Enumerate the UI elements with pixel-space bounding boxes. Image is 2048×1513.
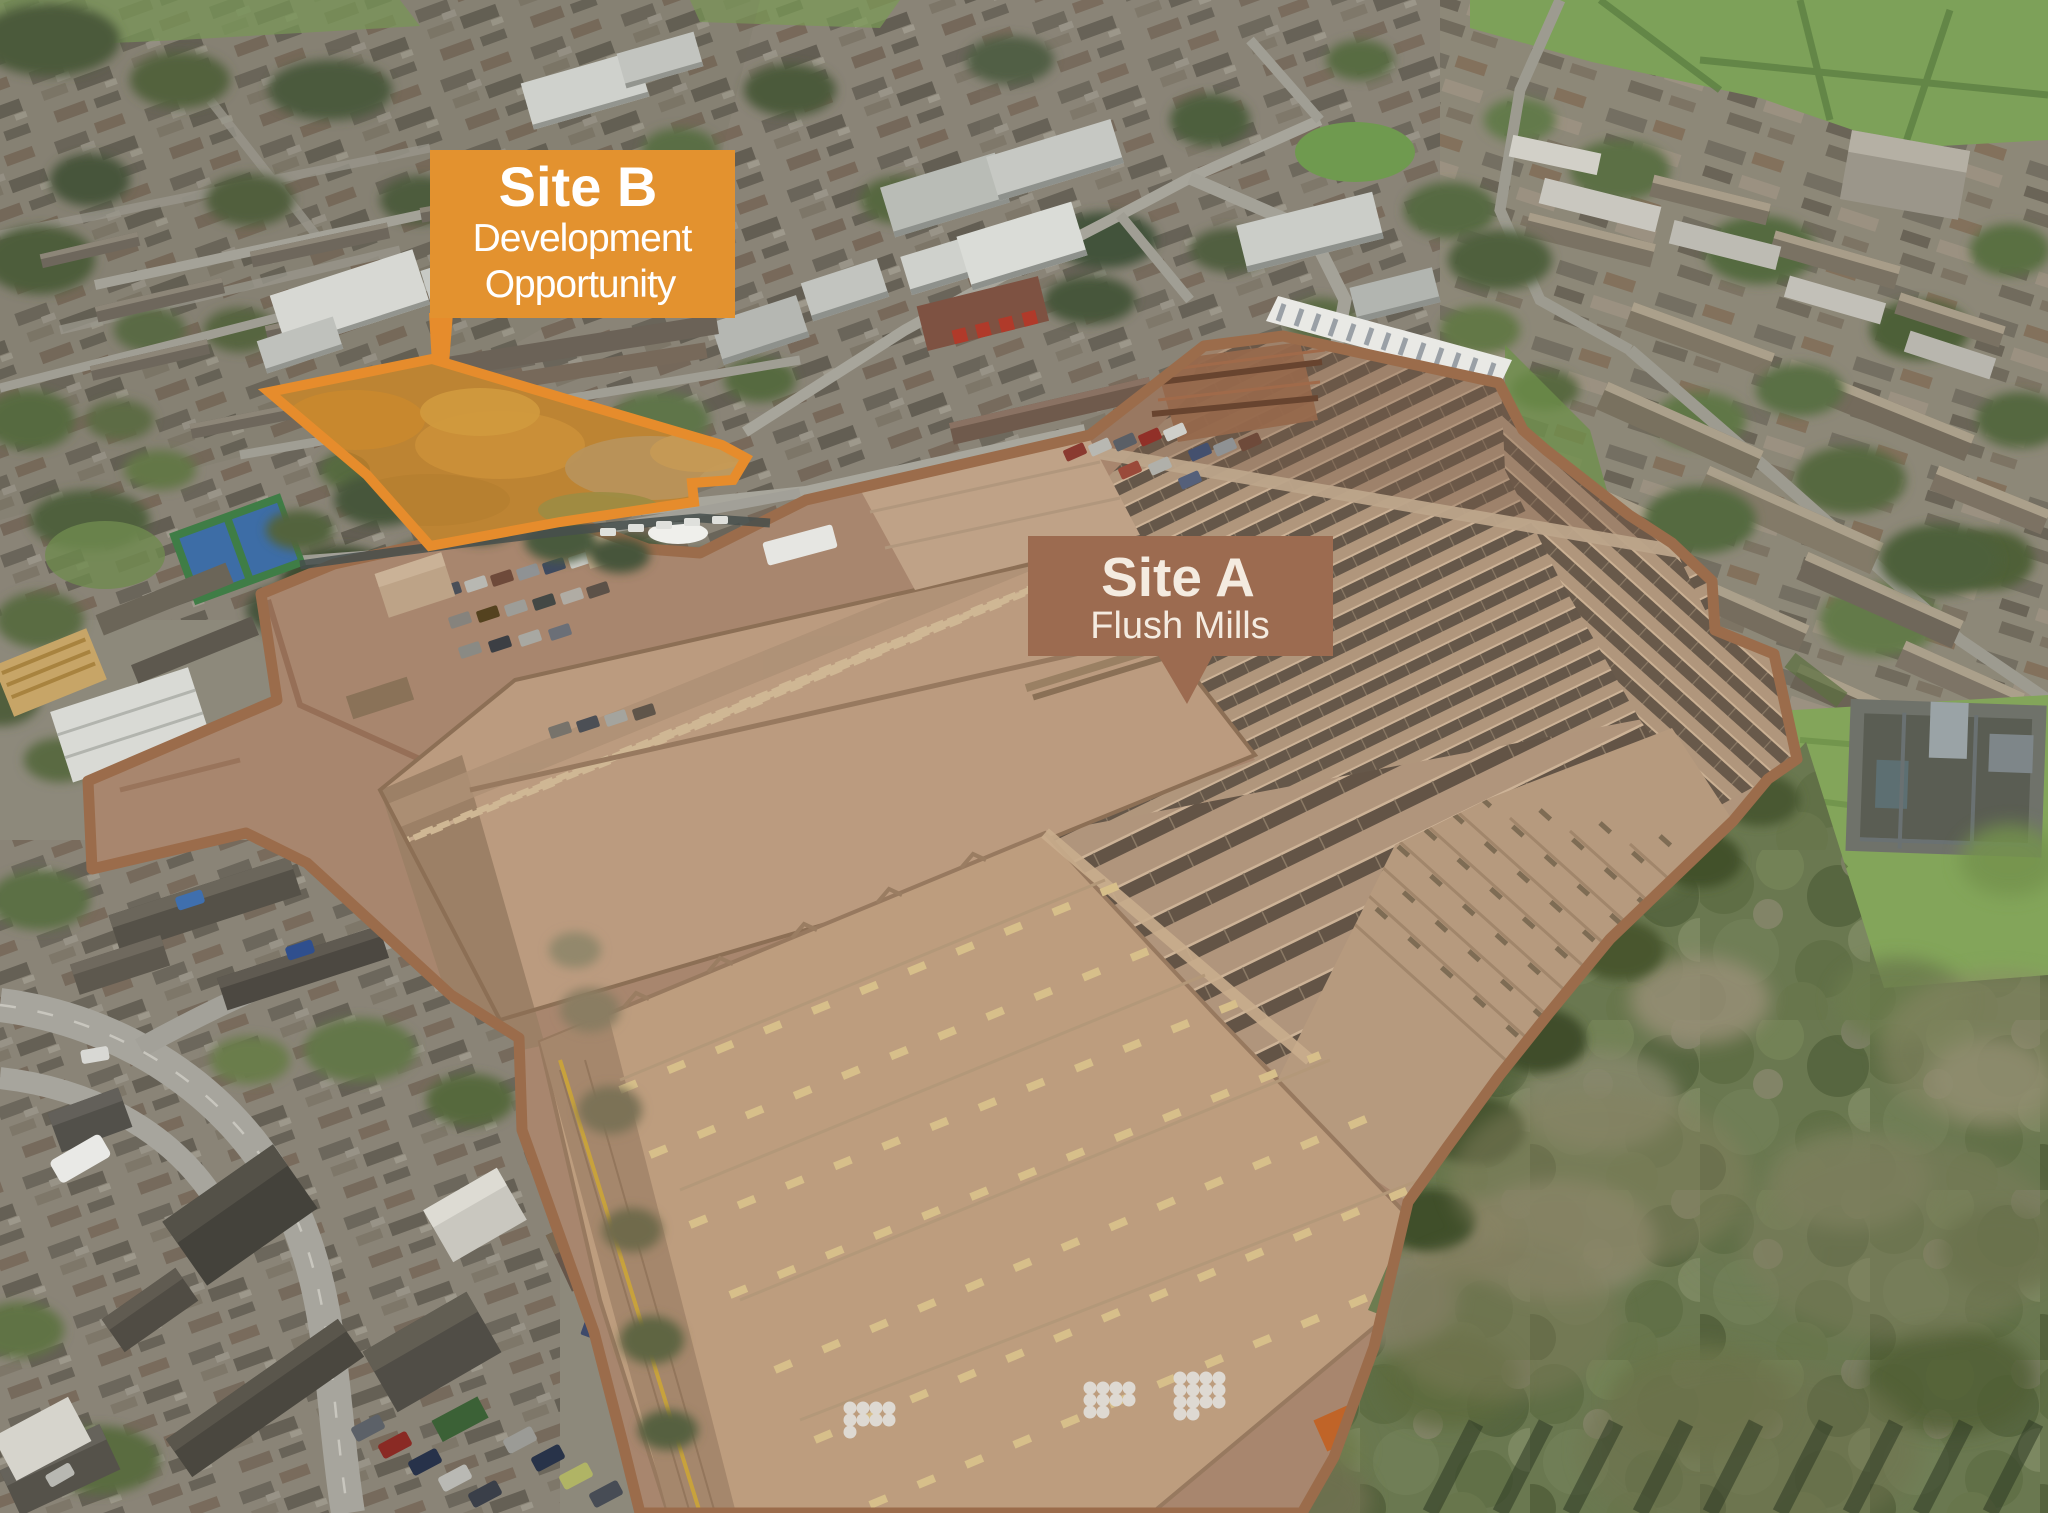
svg-text:Site B: Site B [499,155,658,218]
svg-text:Development: Development [473,217,693,260]
svg-text:Opportunity: Opportunity [485,263,677,306]
svg-text:Site A: Site A [1101,546,1255,608]
svg-text:Flush Mills: Flush Mills [1090,605,1269,647]
